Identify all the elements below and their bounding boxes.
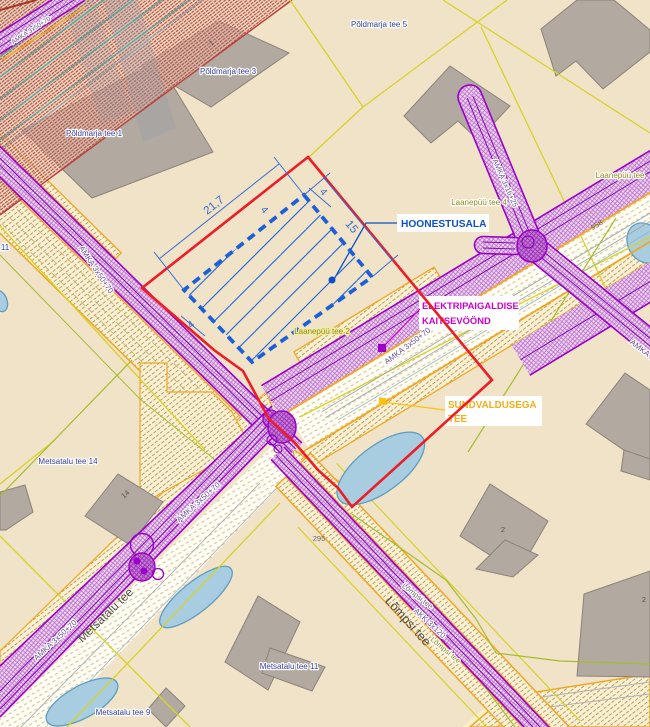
svg-text:KAITSEVÖÖND: KAITSEVÖÖND (422, 315, 491, 326)
svg-text:ELEKTRIPAIGALDISE: ELEKTRIPAIGALDISE (422, 300, 519, 311)
svg-text:Laanepüü tee 4: Laanepüü tee 4 (451, 198, 507, 207)
svg-text:Põldmarja tee 1: Põldmarja tee 1 (66, 129, 123, 138)
svg-text:Põldmarja tee 5: Põldmarja tee 5 (351, 20, 408, 29)
svg-text:Metsatalu tee 11: Metsatalu tee 11 (260, 662, 319, 671)
svg-text:2: 2 (501, 525, 505, 534)
svg-text:Laanepüü tee 2: Laanepüü tee 2 (294, 327, 350, 336)
svg-text:2: 2 (642, 595, 646, 604)
svg-text:Metsatalu tee 14: Metsatalu tee 14 (38, 457, 98, 466)
svg-text:Metsatalu tee 9: Metsatalu tee 9 (96, 708, 151, 717)
svg-text:Laanepüü tee: Laanepüü tee (596, 171, 645, 180)
svg-text:HOONESTUSALA: HOONESTUSALA (401, 219, 487, 230)
svg-text:11: 11 (1, 243, 10, 252)
svg-text:Põldmarja tee 3: Põldmarja tee 3 (200, 67, 257, 76)
svg-text:295: 295 (313, 534, 326, 543)
